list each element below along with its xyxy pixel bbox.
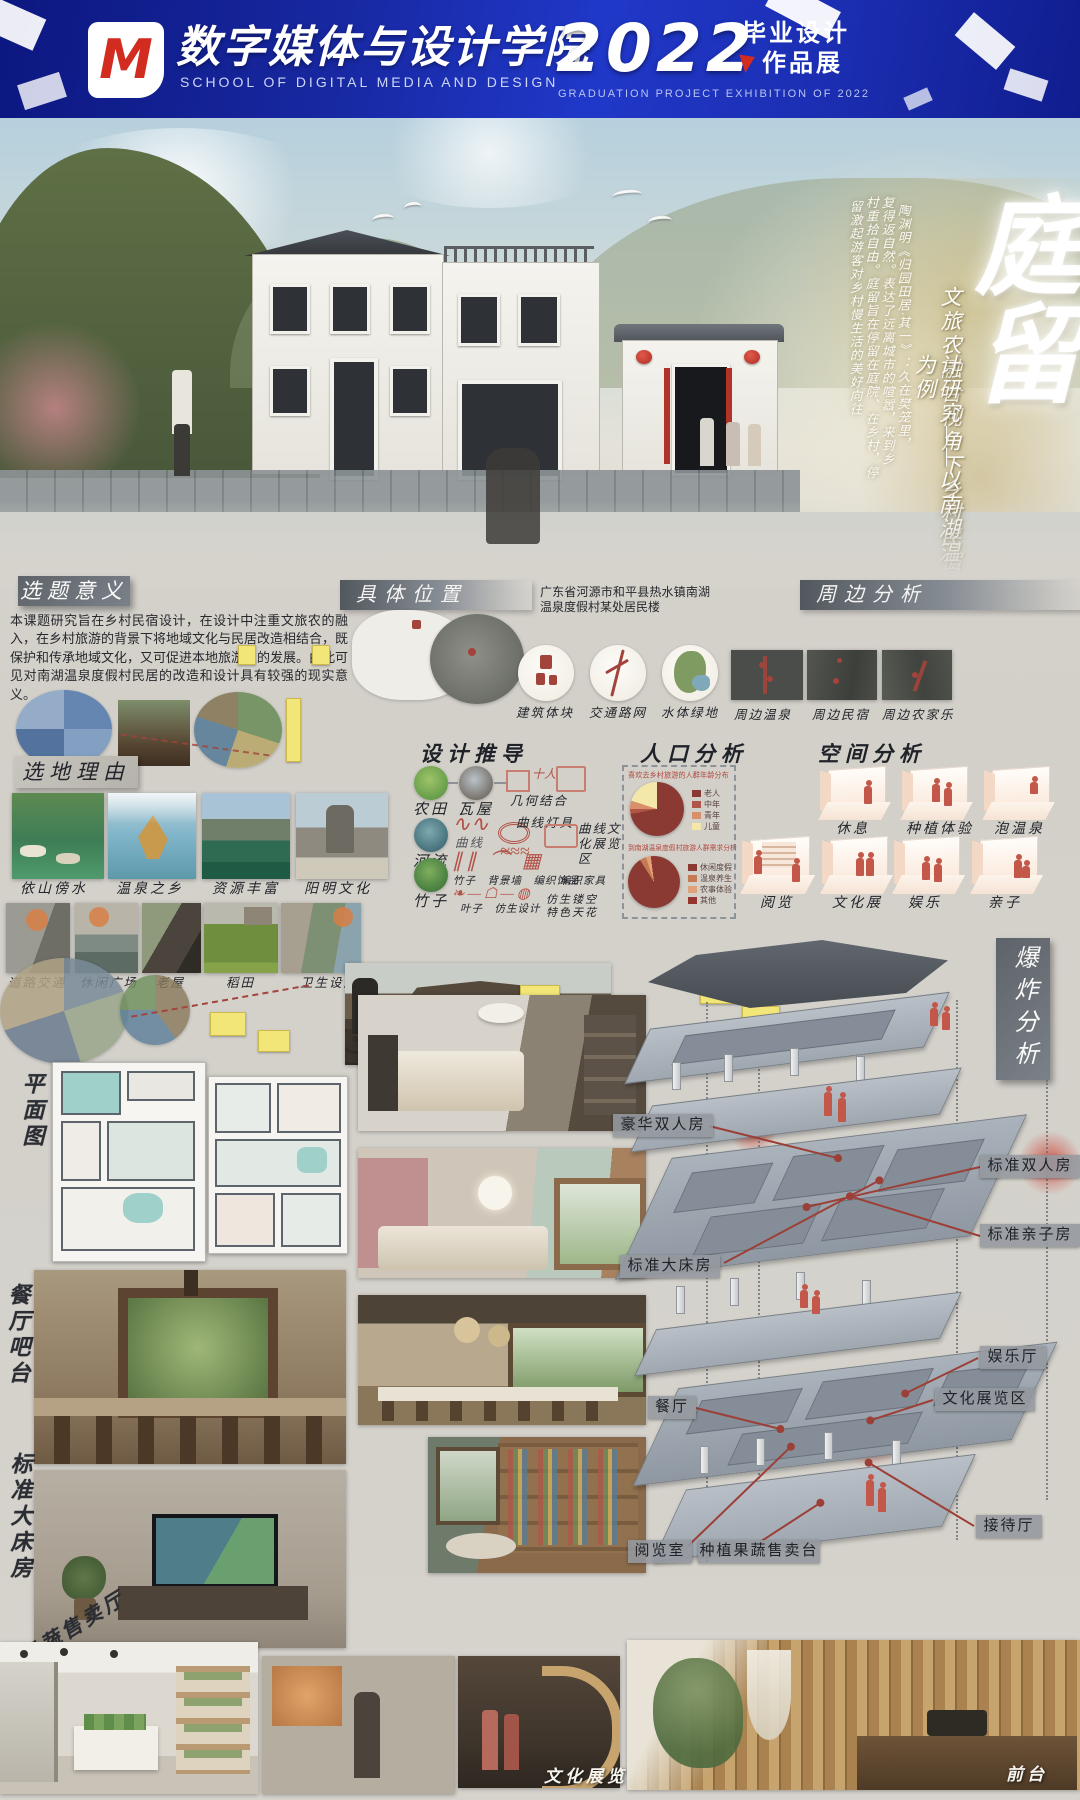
program-line2: 作品展	[762, 50, 843, 78]
figure-red	[812, 1296, 820, 1314]
space-label: 阅览	[760, 896, 794, 912]
montage-circle-large	[0, 958, 128, 1064]
feature-label: 资源丰富	[212, 882, 280, 898]
aerial-photo-circle	[430, 614, 524, 704]
produce-shop-photo	[0, 1642, 258, 1794]
legend-label: 中年	[704, 800, 720, 809]
room-label-reception: 接待厅	[976, 1515, 1042, 1538]
farmland-label: 农田	[413, 802, 449, 819]
montage-circle	[120, 975, 190, 1045]
space-room-exhibit	[822, 838, 888, 894]
walking-person	[486, 448, 540, 544]
window	[270, 284, 310, 334]
visitor-figure	[700, 418, 714, 466]
sticky-note	[238, 645, 256, 665]
diagram-label: 建筑体块	[516, 706, 574, 720]
pillar	[790, 1048, 799, 1076]
room-label-standard-double: 标准双人房	[980, 1155, 1080, 1178]
sticky-note	[312, 645, 330, 665]
feature-label: 依山傍水	[20, 882, 88, 898]
sticky-note	[210, 1012, 246, 1036]
section-heading-significance: 选题意义	[18, 576, 130, 606]
feature-photo-mountain-water	[12, 793, 104, 879]
pie-chart-demand	[628, 856, 680, 908]
photographer-legs	[174, 424, 190, 476]
space-room-rest	[820, 768, 886, 820]
leaf-sketch: ❧—☖—◍	[452, 886, 533, 903]
standard-king-room-photo	[358, 1148, 646, 1278]
figure-red	[800, 1290, 808, 1308]
pie-chart-age	[630, 782, 684, 836]
facility-label: 稻田	[226, 976, 255, 990]
legend-swatch	[688, 897, 697, 904]
farmland-photo	[414, 766, 448, 800]
front-desk-label: 前台	[1006, 1766, 1048, 1783]
legend-label: 农事体验	[700, 885, 732, 894]
poem-col1: 陶渊明《归园田居·其一》：久在樊笼里，	[894, 204, 910, 504]
legend-label: 休闲度假	[700, 863, 732, 872]
space-label: 娱乐	[908, 896, 942, 912]
window	[390, 284, 430, 334]
hero-render: 庭留 文旅农融合视角下乡村民宿设 计研究——以南湖温泉度假村为例 陶渊明《归园田…	[0, 118, 1080, 588]
satellite-photo-farmstay	[882, 650, 952, 700]
space-room-entertain	[894, 838, 960, 894]
room-label-standard-king: 标准大床房	[620, 1255, 720, 1278]
legend-swatch	[692, 790, 701, 797]
cloud	[360, 118, 620, 208]
feature-photo-statue	[296, 793, 388, 879]
satellite-photo-homestay	[807, 650, 877, 700]
pillar	[824, 1432, 833, 1460]
exhibition-year: 2022	[556, 14, 756, 84]
geometry-sketch	[506, 770, 530, 792]
visitor-figure	[748, 424, 761, 466]
weave-furniture-label: 编织家具	[560, 876, 606, 888]
pie1-legend: 老人 中年 青年 儿童	[692, 788, 720, 832]
feature-photo-hotspring	[108, 793, 196, 879]
legend-swatch	[692, 801, 701, 808]
section-heading-surroundings: 周边分析	[800, 580, 1080, 610]
site-dot	[468, 648, 476, 656]
section-heading-derivation: 设计推导	[420, 744, 528, 765]
figure-red	[866, 1480, 874, 1506]
pie2-legend: 休闲度假 温泉养生 农事体验 其他	[688, 862, 732, 906]
entry-door	[330, 358, 378, 480]
reading-room-photo	[428, 1437, 646, 1573]
crane-bird	[612, 188, 643, 202]
geometry-sketch	[556, 766, 586, 792]
section-heading-site-reasons: 选地理由	[14, 756, 138, 788]
feature-photo-village	[202, 793, 290, 879]
sticky-note	[286, 698, 301, 762]
legend-swatch	[688, 864, 697, 871]
geometry-sketch: 十人	[532, 768, 556, 781]
satellite-label: 周边民宿	[812, 708, 870, 722]
figure-red	[942, 1012, 950, 1030]
legend-label: 儿童	[704, 822, 720, 831]
exhibition-sketch	[544, 824, 578, 848]
school-logo: M	[88, 22, 164, 98]
space-label: 文化展	[832, 896, 883, 912]
bamboo-photo	[414, 858, 448, 892]
section-heading-location: 具体位置	[340, 580, 532, 610]
heading-bar-area: 餐厅吧台	[4, 1283, 32, 1387]
section-heading-explosion: 爆炸分析	[996, 938, 1050, 1080]
banner-shape	[0, 0, 46, 51]
pie1-title: 喜欢去乡村旅游的人群年龄分布	[628, 772, 729, 780]
pillar	[724, 1054, 733, 1082]
bionic-ceiling-label: 仿生镂空特色天花	[546, 894, 604, 920]
legend-swatch	[688, 875, 697, 882]
window	[458, 294, 500, 346]
space-label: 种植体验	[906, 822, 974, 838]
poem-col2: 复得返自然。表达了远离城市的喧嚣，来到乡	[878, 196, 894, 506]
legend-swatch	[688, 886, 697, 893]
window	[270, 366, 310, 416]
corridor-photo	[262, 1656, 455, 1794]
satellite-label: 周边农家乐	[882, 708, 955, 722]
crane-bird	[371, 213, 394, 226]
derivation-arrow	[448, 782, 458, 784]
red-lantern	[744, 350, 760, 364]
window	[330, 284, 370, 334]
bamboo-sketch: ∥∥ ⌒ ▦	[452, 850, 545, 872]
dining-room-photo	[358, 1295, 646, 1425]
tile-house-photo	[459, 766, 493, 800]
feature-label: 阳明文化	[304, 882, 372, 898]
room-label-culture-zone: 文化展览区	[935, 1388, 1035, 1411]
geometry-label: 几何结合	[510, 794, 568, 808]
legend-label: 其他	[700, 896, 716, 905]
room-label-deluxe-double: 豪华双人房	[613, 1114, 713, 1137]
guide-dots	[706, 1002, 708, 1562]
diagram-label: 交通路网	[589, 706, 647, 720]
floor-plan-2	[208, 1076, 348, 1254]
room-label-dining: 餐厅	[648, 1396, 696, 1419]
diagram-road-network	[590, 645, 646, 701]
room-label-entertainment: 娱乐厅	[980, 1346, 1046, 1369]
poem-col3: 村重拾自由。庭留旨在停留在庭院、在乡村，停	[862, 196, 878, 516]
section-heading-space: 空间分析	[818, 744, 926, 765]
curve-sketch: ∿∿	[452, 812, 489, 836]
room-label-standard-family: 标准亲子房	[980, 1224, 1080, 1247]
pillar	[672, 1062, 681, 1090]
logo-letter: M	[94, 28, 158, 92]
curve-label: 曲线	[455, 836, 484, 850]
program-line1: 毕业设计	[742, 20, 850, 48]
diagram-building-mass	[518, 645, 574, 701]
banner-shape	[1004, 68, 1049, 101]
space-room-family	[972, 838, 1038, 894]
floor-plan-1	[52, 1062, 206, 1262]
window	[390, 366, 430, 416]
school-name-en: SCHOOL OF DIGITAL MEDIA AND DESIGN	[180, 74, 558, 90]
legend-label: 青年	[704, 811, 720, 820]
figure-red	[878, 1488, 886, 1512]
section-heading-population: 人口分析	[640, 744, 748, 765]
space-room-reading	[742, 838, 810, 894]
poster-canvas: M 数字媒体与设计学院 SCHOOL OF DIGITAL MEDIA AND …	[0, 0, 1080, 1800]
bamboo-label: 竹子	[413, 894, 449, 911]
school-name-cn: 数字媒体与设计学院	[176, 22, 590, 74]
crane-bird	[403, 201, 422, 214]
map-marker	[412, 620, 421, 629]
figure-red	[930, 1008, 938, 1026]
feature-label: 温泉之乡	[116, 882, 184, 898]
window	[518, 294, 560, 346]
space-label: 亲子	[988, 896, 1022, 912]
deluxe-double-room-photo	[358, 995, 646, 1131]
legend-label: 温泉养生	[700, 874, 732, 883]
banner-shape	[903, 87, 932, 110]
banner-shape	[17, 72, 67, 110]
red-lantern	[636, 350, 652, 364]
room-label-produce-stand: 种植果蔬售卖台	[698, 1540, 820, 1563]
legend-swatch	[692, 812, 701, 819]
pillar	[730, 1278, 739, 1306]
pillar	[700, 1446, 709, 1474]
river-photo	[414, 818, 448, 852]
location-address: 广东省河源市和平县热水镇南湖温泉度假村某处居民楼	[540, 585, 710, 615]
heading-floor-plan: 平面图	[18, 1072, 46, 1150]
diagram-label: 水体绿地	[661, 706, 719, 720]
space-room-planting	[902, 768, 968, 820]
exhibition-en: GRADUATION PROJECT EXHIBITION OF 2022	[558, 88, 870, 100]
space-room-hotspring	[984, 768, 1050, 820]
pillar	[756, 1438, 765, 1466]
montage-circle	[194, 692, 282, 768]
leaf-design-label: 叶子 仿生设计	[460, 904, 541, 916]
sticky-note	[258, 1030, 290, 1052]
space-label: 休息	[836, 822, 870, 838]
pie2-title: 到南湖温泉度假村旅游人群需求分析	[628, 845, 737, 852]
room-label-reading: 阅览室	[628, 1540, 692, 1563]
couplet-strip	[664, 368, 670, 464]
header-banner: M 数字媒体与设计学院 SCHOOL OF DIGITAL MEDIA AND …	[0, 0, 1080, 118]
satellite-photo-hotspring	[731, 650, 803, 700]
legend-swatch	[692, 823, 701, 830]
diagram-water-green	[662, 645, 718, 701]
legend-label: 老人	[704, 789, 720, 798]
visitor-figure	[726, 422, 740, 466]
derivation-arrow	[494, 782, 506, 784]
figure-red	[838, 1098, 846, 1122]
poem-col4: 留激起游客对乡村慢生活的美好向往	[846, 200, 862, 500]
satellite-label: 周边温泉	[734, 708, 792, 722]
figure-red	[824, 1092, 832, 1116]
bar-area-photo	[34, 1270, 346, 1464]
facility-photo-old-house	[142, 903, 201, 973]
pillar	[676, 1286, 685, 1314]
facility-photo-rice-field	[204, 903, 278, 973]
heading-king-room: 标准大床房	[6, 1452, 34, 1582]
guide-dots	[1046, 1080, 1048, 1500]
banner-shape	[955, 12, 1016, 70]
